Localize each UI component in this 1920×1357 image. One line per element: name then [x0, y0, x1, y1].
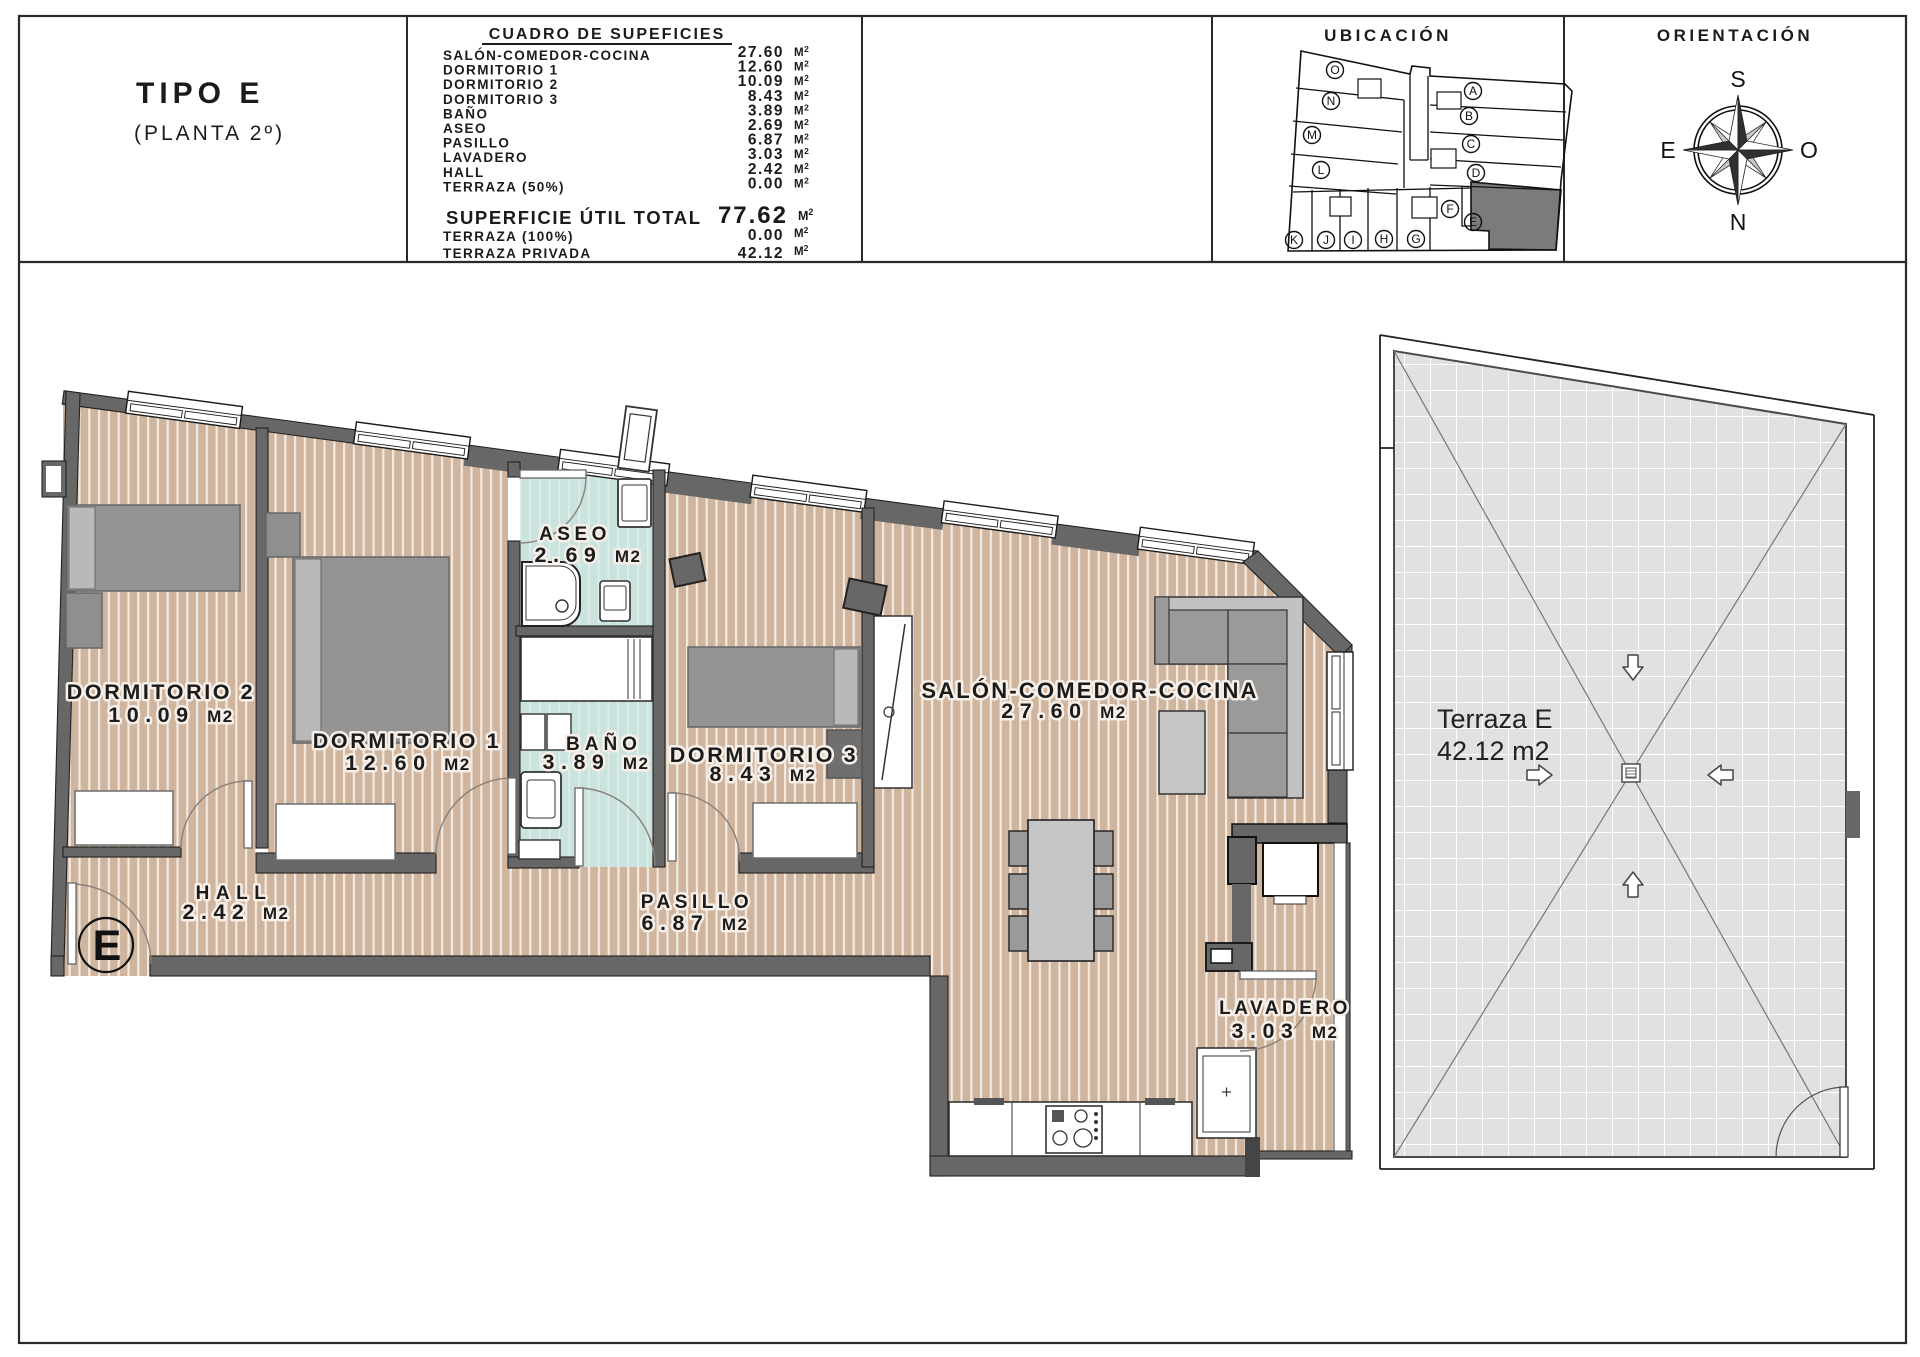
svg-text:C: C	[1467, 137, 1476, 151]
svg-text:CUADRO DE SUPEFICIES: CUADRO DE SUPEFICIES	[489, 26, 725, 43]
svg-text:N: N	[1327, 94, 1336, 108]
svg-text:F: F	[1446, 202, 1453, 216]
svg-text:E: E	[1660, 137, 1675, 163]
svg-text:ASEO: ASEO	[539, 524, 611, 545]
svg-text:HALL: HALL	[443, 165, 485, 180]
svg-text:H: H	[1380, 232, 1389, 246]
svg-text:SALÓN-COMEDOR-COCINA: SALÓN-COMEDOR-COCINA	[443, 48, 651, 63]
svg-text:0.00: 0.00	[748, 175, 784, 192]
svg-text:E: E	[93, 922, 122, 970]
svg-text:SUPERFICIE ÚTIL TOTAL: SUPERFICIE ÚTIL TOTAL	[446, 207, 702, 228]
svg-text:8.43 M2: 8.43 M2	[710, 762, 817, 786]
svg-text:LAVADERO: LAVADERO	[443, 150, 528, 165]
svg-text:0.00: 0.00	[748, 227, 784, 244]
svg-text:PASILLO: PASILLO	[443, 136, 510, 151]
svg-text:G: G	[1411, 232, 1420, 246]
svg-text:DORMITORIO 1: DORMITORIO 1	[313, 729, 501, 753]
svg-text:O: O	[1330, 63, 1339, 77]
svg-text:42.12 m2: 42.12 m2	[1437, 736, 1550, 766]
svg-text:BAÑO: BAÑO	[443, 106, 488, 121]
svg-text:77.62: 77.62	[718, 202, 788, 229]
svg-text:2.42 M2: 2.42 M2	[183, 900, 290, 924]
svg-text:B: B	[1465, 109, 1473, 123]
svg-text:K: K	[1290, 233, 1298, 247]
svg-text:2.69 M2: 2.69 M2	[535, 543, 642, 567]
svg-text:TIPO E: TIPO E	[136, 77, 264, 110]
svg-text:6.87 M2: 6.87 M2	[642, 911, 749, 935]
svg-text:ASEO: ASEO	[443, 121, 487, 136]
svg-text:3.03 M2: 3.03 M2	[1232, 1019, 1339, 1043]
svg-text:PASILLO: PASILLO	[641, 892, 753, 913]
svg-text:42.12: 42.12	[738, 245, 784, 262]
svg-text:TERRAZA (100%): TERRAZA (100%)	[443, 229, 574, 244]
svg-text:M: M	[1307, 128, 1317, 142]
svg-text:12.60 M2: 12.60 M2	[345, 751, 470, 775]
svg-text:DORMITORIO 2: DORMITORIO 2	[443, 77, 559, 92]
svg-text:A: A	[1469, 84, 1477, 98]
svg-text:TERRAZA (50%): TERRAZA (50%)	[443, 179, 565, 194]
svg-text:N: N	[1730, 209, 1747, 235]
svg-text:TERRAZA PRIVADA: TERRAZA PRIVADA	[443, 246, 592, 261]
svg-text:DORMITORIO 2: DORMITORIO 2	[67, 680, 255, 704]
svg-text:10.09 M2: 10.09 M2	[108, 703, 233, 727]
svg-text:LAVADERO: LAVADERO	[1219, 998, 1351, 1019]
svg-text:ORIENTACIÓN: ORIENTACIÓN	[1657, 26, 1813, 45]
svg-text:DORMITORIO 3: DORMITORIO 3	[443, 92, 559, 107]
svg-text:(PLANTA 2º): (PLANTA 2º)	[134, 122, 285, 145]
svg-text:DORMITORIO 1: DORMITORIO 1	[443, 63, 559, 78]
svg-text:UBICACIÓN: UBICACIÓN	[1324, 26, 1452, 45]
svg-text:3.89 M2: 3.89 M2	[543, 750, 650, 774]
svg-text:Terraza E: Terraza E	[1437, 704, 1553, 734]
svg-text:O: O	[1800, 137, 1818, 163]
svg-text:D: D	[1472, 166, 1481, 180]
svg-text:J: J	[1323, 233, 1329, 247]
svg-text:27.60 M2: 27.60 M2	[1001, 699, 1126, 723]
svg-text:S: S	[1730, 66, 1745, 92]
svg-text:I: I	[1351, 233, 1354, 247]
svg-text:L: L	[1318, 163, 1325, 177]
svg-text:E: E	[1469, 215, 1477, 229]
